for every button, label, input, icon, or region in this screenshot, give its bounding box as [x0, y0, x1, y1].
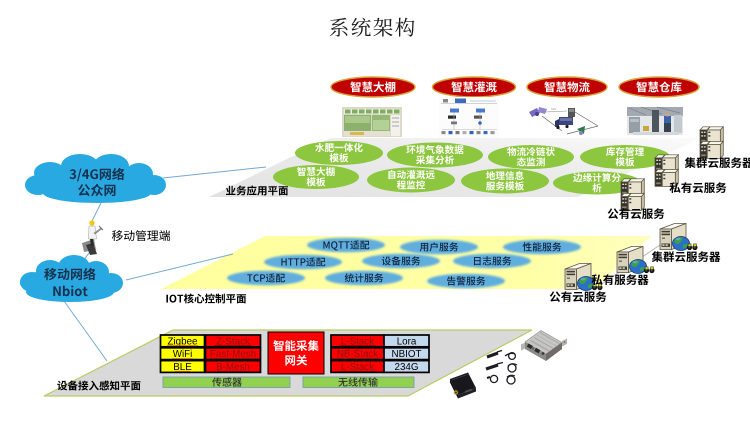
- svg-text:NBIOT: NBIOT: [392, 349, 422, 360]
- svg-text:Lora: Lora: [397, 336, 417, 347]
- svg-text:GPS: GPS: [551, 108, 557, 111]
- svg-text:234G: 234G: [395, 362, 419, 373]
